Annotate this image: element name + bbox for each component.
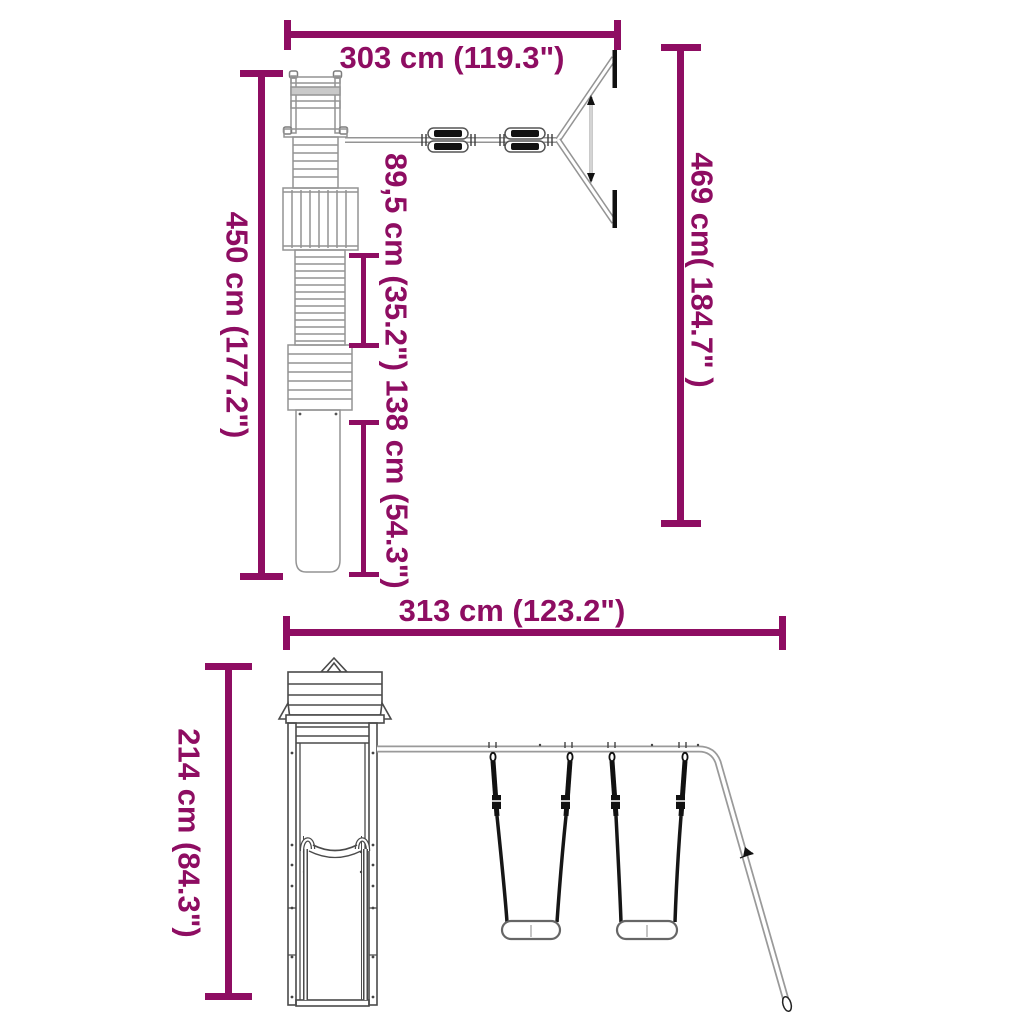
dimension-tick xyxy=(779,616,786,650)
plan-platform-depth-label: 89,5 cm (35.2") xyxy=(381,153,412,371)
playset-line-drawing xyxy=(0,0,1024,1024)
front-slide xyxy=(302,839,368,1000)
front-width-label: 313 cm (123.2") xyxy=(399,595,626,626)
plan-slide-length-label: 138 cm (54.3") xyxy=(382,379,413,588)
front-swing-beam xyxy=(377,742,793,1012)
dimension-tick xyxy=(349,572,379,577)
dimension-plan-slide-length xyxy=(349,420,379,577)
dimension-tick xyxy=(240,573,283,580)
dimension-line xyxy=(284,31,621,38)
dimension-plan-platform-depth xyxy=(349,253,379,348)
front-swings xyxy=(490,753,687,939)
dimension-line xyxy=(677,44,684,527)
dimension-tick xyxy=(661,520,701,527)
dimension-line xyxy=(361,253,366,348)
plan-swing-arm-depth-label: 469 cm( 184.7" ) xyxy=(687,152,718,387)
plan-a-frame xyxy=(558,50,617,228)
dimension-tick xyxy=(205,993,252,1000)
plan-slide xyxy=(296,410,340,572)
plan-view-drawing xyxy=(283,50,617,572)
dimension-line xyxy=(283,629,786,636)
front-roof xyxy=(279,658,391,723)
dimension-tick xyxy=(349,343,379,348)
plan-width-label: 303 cm (119.3") xyxy=(340,42,565,73)
dimension-line xyxy=(258,70,265,580)
dimension-line xyxy=(225,663,232,1000)
product-dimension-diagram: 303 cm (119.3") 450 cm (177.2") 89,5 cm … xyxy=(0,0,1024,1024)
dimension-front-height xyxy=(205,663,252,1000)
plan-tower xyxy=(283,71,358,572)
dimension-line xyxy=(361,420,366,577)
dimension-tick xyxy=(614,20,621,50)
leg-foot-cap xyxy=(781,996,793,1013)
plan-depth-label: 450 cm (177.2") xyxy=(222,212,253,439)
front-view-drawing xyxy=(279,658,793,1012)
front-height-label: 214 cm (84.3") xyxy=(174,728,205,937)
